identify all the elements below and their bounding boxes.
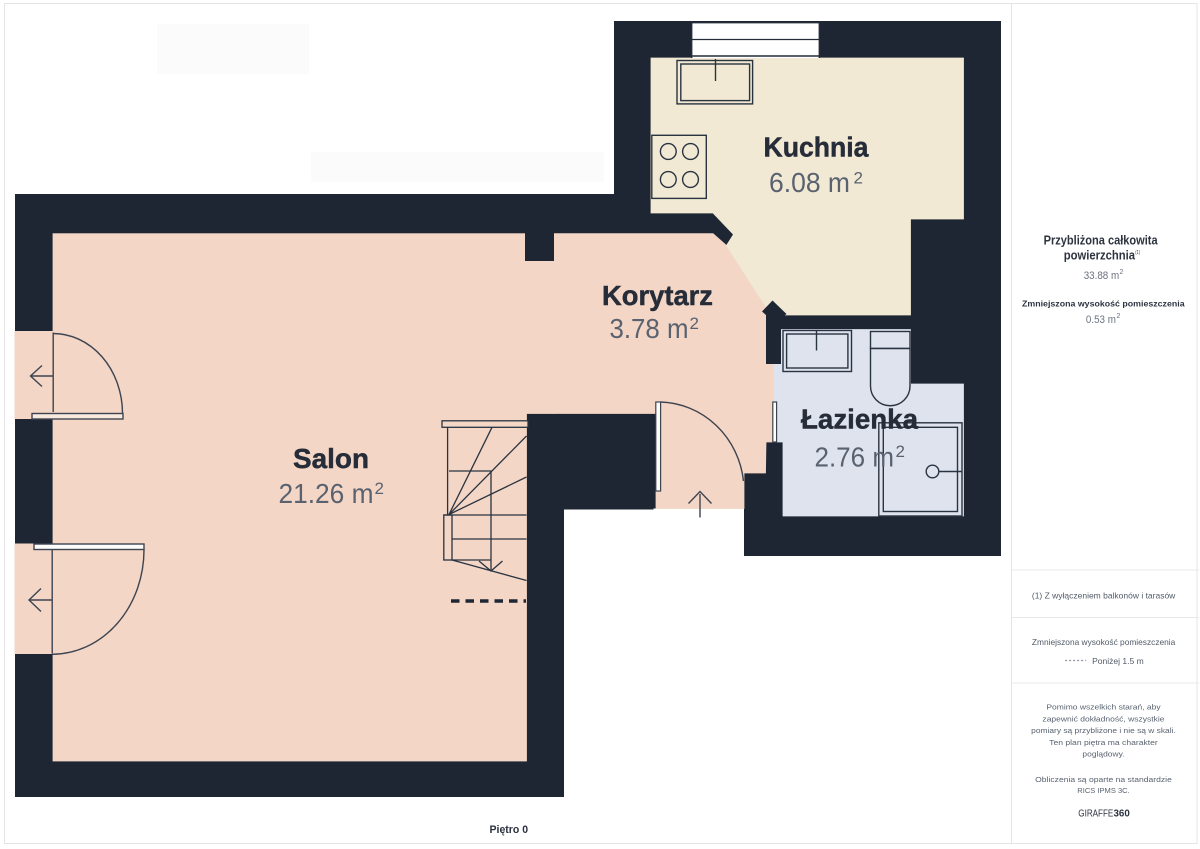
svg-text:2: 2 [690,314,699,333]
svg-text:360: 360 [1114,807,1130,819]
svg-text:Łazienka: Łazienka [801,404,918,435]
svg-text:pomiary są przybliżone i nie s: pomiary są przybliżone i nie są w skali. [1031,726,1176,735]
svg-text:21.26 m: 21.26 m [279,478,374,509]
svg-text:2: 2 [896,442,905,461]
svg-text:2: 2 [854,169,863,188]
svg-text:Korytarz: Korytarz [602,280,713,311]
svg-text:RICS IPMS 3C.: RICS IPMS 3C. [1077,786,1129,795]
svg-text:Pomimo wszelkich starań, aby: Pomimo wszelkich starań, aby [1046,703,1160,712]
svg-text:Przybliżona całkowita: Przybliżona całkowita [1044,232,1159,247]
svg-text:(1) Z wyłączeniem balkonów i t: (1) Z wyłączeniem balkonów i tarasów [1032,592,1175,601]
svg-text:zapewnić dokładność, wszystkie: zapewnić dokładność, wszystkie [1042,715,1164,724]
svg-text:(1): (1) [1135,250,1140,256]
svg-text:Obliczenia są oparte na standa: Obliczenia są oparte na standardzie [1035,775,1172,784]
svg-text:GIRAFFE: GIRAFFE [1078,807,1113,819]
svg-text:Piętro 0: Piętro 0 [490,824,529,836]
svg-text:2.76 m: 2.76 m [815,442,895,473]
svg-text:powierzchnia: powierzchnia [1064,247,1136,262]
svg-text:2: 2 [1117,313,1121,320]
svg-text:Poniżej 1.5 m: Poniżej 1.5 m [1092,657,1144,666]
svg-text:Salon: Salon [293,443,369,474]
svg-text:3.78 m: 3.78 m [610,313,689,344]
svg-text:2: 2 [375,479,384,498]
svg-text:6.08 m: 6.08 m [769,167,850,198]
svg-text:0.53 m: 0.53 m [1086,314,1116,326]
svg-text:Ten plan piętra ma charakter: Ten plan piętra ma charakter [1049,738,1158,747]
svg-text:Zmniejszona wysokość pomieszcz: Zmniejszona wysokość pomieszczenia [1022,298,1185,308]
svg-text:33.88 m: 33.88 m [1084,270,1120,282]
svg-text:Kuchnia: Kuchnia [764,132,869,163]
svg-text:poglądowy.: poglądowy. [1082,750,1124,759]
svg-text:Zmniejszona wysokość pomieszcz: Zmniejszona wysokość pomieszczenia [1032,638,1176,647]
svg-text:2: 2 [1120,269,1124,276]
